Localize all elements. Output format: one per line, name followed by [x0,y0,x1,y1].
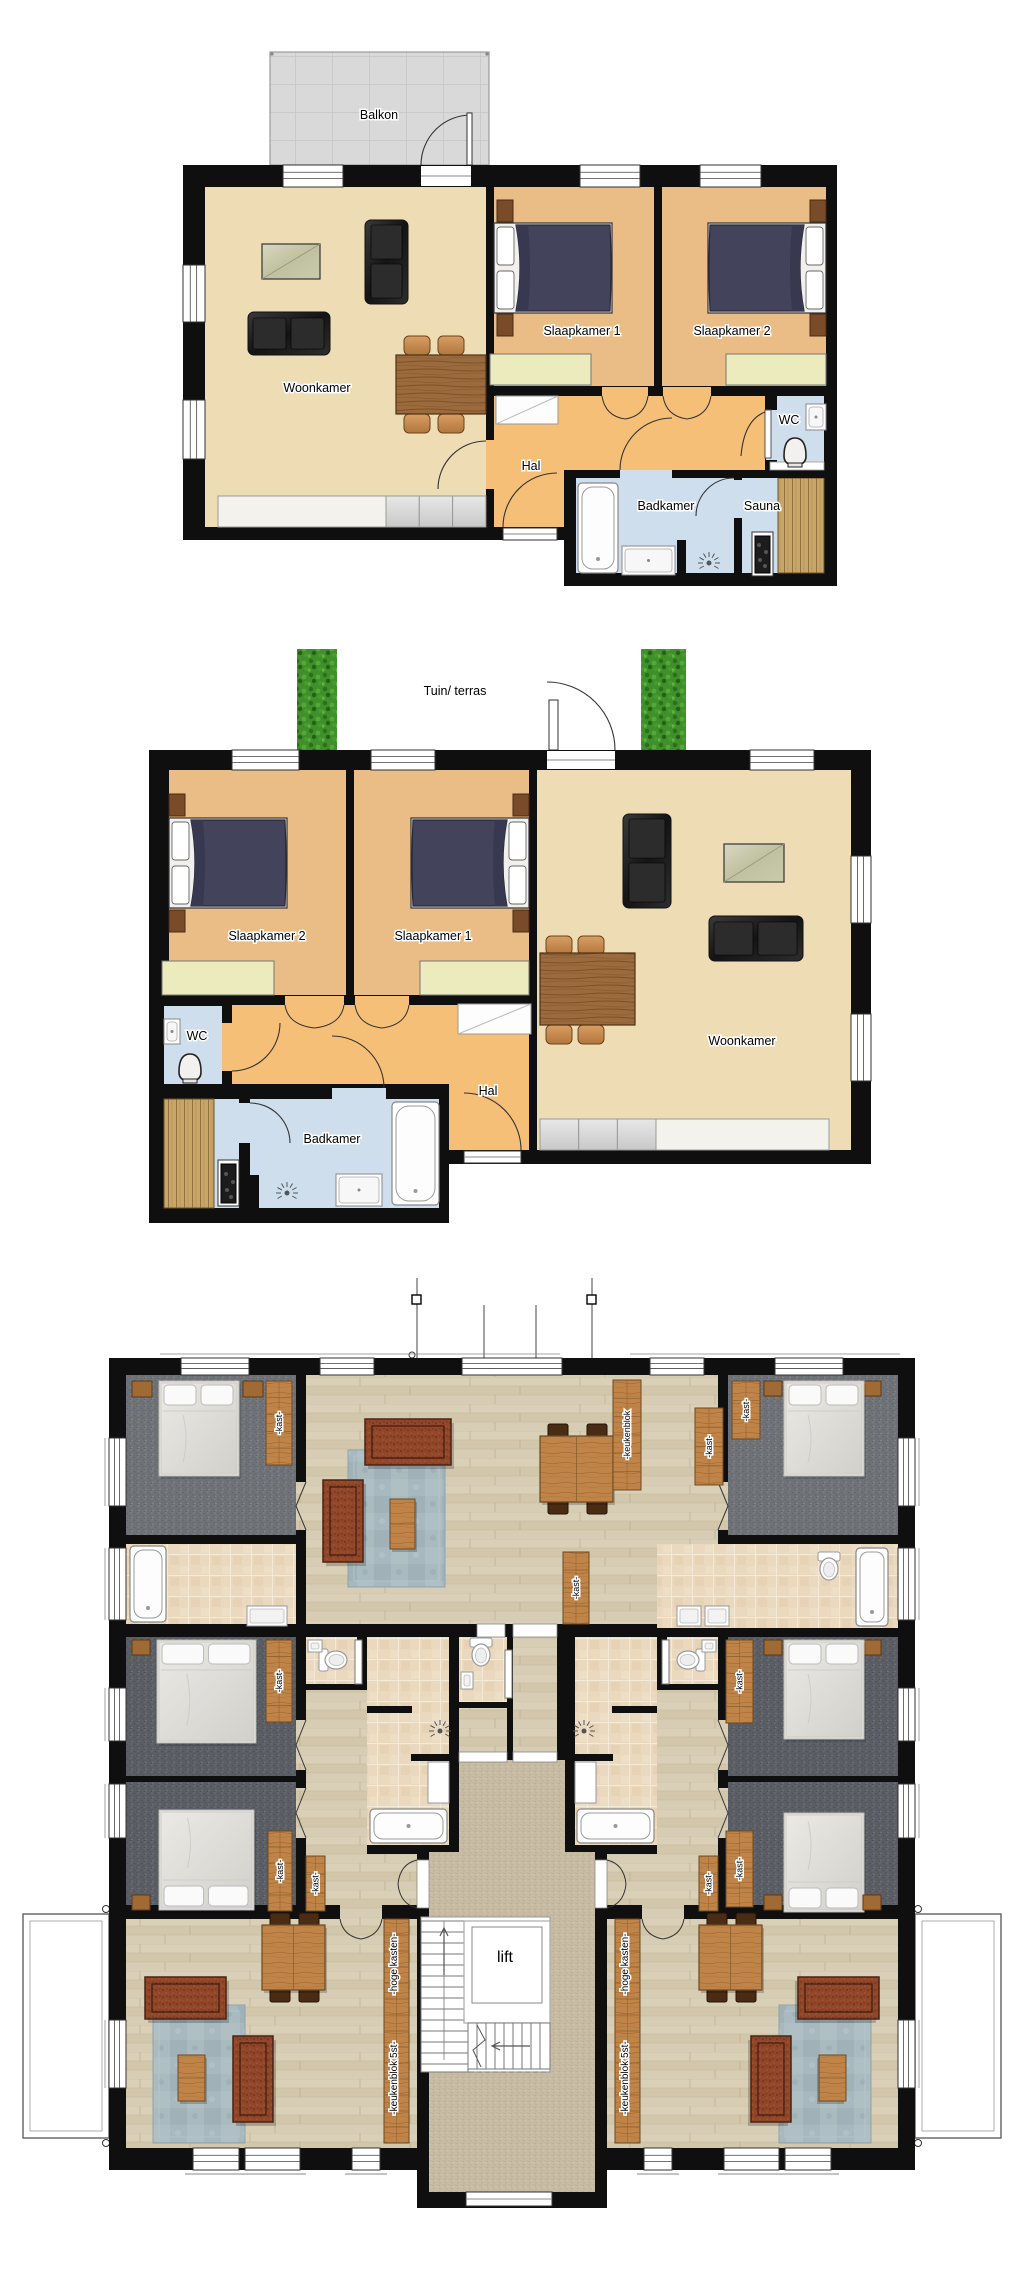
svg-text:-kast-: -kast- [274,1670,284,1693]
svg-text:-kast-: -kast- [704,1435,714,1458]
svg-text:-kast-: -kast- [735,1858,745,1881]
svg-text:Slaapkamer 2: Slaapkamer 2 [693,324,770,338]
svg-text:-keukenblok: -keukenblok [622,1410,632,1459]
svg-text:-kast-: -kast- [571,1577,581,1600]
svg-text:Hal: Hal [479,1084,498,1098]
svg-text:Tuin/ terras: Tuin/ terras [424,684,487,698]
svg-text:-hoge kasten-: -hoge kasten- [620,1933,631,1994]
svg-text:-keukenblok 5st-: -keukenblok 5st- [389,2041,400,2114]
svg-text:Woonkamer: Woonkamer [283,381,350,395]
svg-text:-keukenblok 5st-: -keukenblok 5st- [620,2041,631,2114]
svg-text:WC: WC [779,413,800,427]
svg-text:-kast-: -kast- [741,1399,751,1422]
svg-text:-kast-: -kast- [704,1872,714,1895]
svg-text:-kast-: -kast- [274,1412,284,1435]
svg-text:Woonkamer: Woonkamer [708,1034,775,1048]
svg-text:Hal: Hal [522,459,541,473]
svg-text:-kast-: -kast- [311,1872,321,1895]
svg-text:Badkamer: Badkamer [304,1132,361,1146]
svg-text:Slaapkamer 1: Slaapkamer 1 [543,324,620,338]
svg-text:Sauna: Sauna [744,499,780,513]
svg-text:lift: lift [497,1949,514,1966]
svg-text:-hoge kasten-: -hoge kasten- [389,1933,400,1994]
svg-text:Badkamer: Badkamer [638,499,695,513]
svg-text:Slaapkamer 2: Slaapkamer 2 [228,929,305,943]
svg-text:-kast-: -kast- [735,1670,745,1693]
svg-text:Balkon: Balkon [360,108,398,122]
svg-text:WC: WC [187,1029,208,1043]
svg-text:Slaapkamer 1: Slaapkamer 1 [394,929,471,943]
svg-text:-kast-: -kast- [275,1860,285,1883]
